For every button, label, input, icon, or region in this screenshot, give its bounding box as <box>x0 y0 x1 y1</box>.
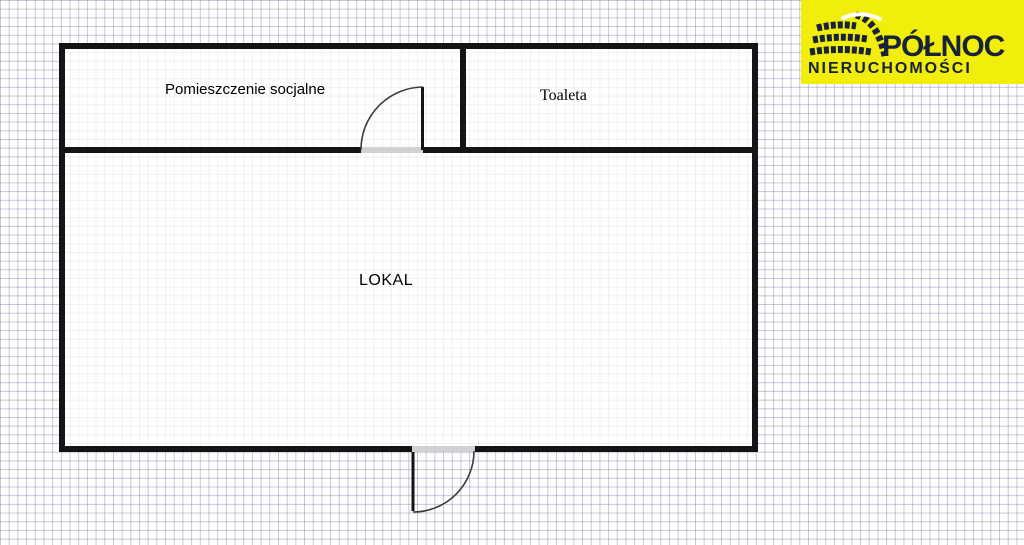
floorplan-interior <box>65 49 752 446</box>
bottom-door-opening <box>412 446 475 452</box>
room-label-toaleta: Toaleta <box>540 87 587 105</box>
top-door-opening <box>361 147 423 153</box>
wall-top <box>59 43 758 49</box>
logo-swoosh <box>843 14 880 19</box>
wall-divider-vertical <box>460 43 466 153</box>
wall-right <box>752 43 758 452</box>
wall-middle-left-segment <box>59 147 361 153</box>
wall-bottom-left-segment <box>59 446 412 452</box>
logo-subtitle: NIERUCHOMOŚCI <box>808 61 1022 77</box>
wall-bottom-right-segment <box>475 446 758 452</box>
logo-brick-row-2 <box>813 37 867 40</box>
logo-brick-row-3 <box>810 50 871 53</box>
room-label-pomieszczenie-socjalne: Pomieszczenie socjalne <box>165 81 325 98</box>
logo-title: PÓŁNOC <box>882 32 1020 62</box>
polnoc-logo-icon <box>801 0 893 66</box>
room-label-lokal: LOKAL <box>359 272 413 290</box>
wall-middle-right-segment <box>423 147 758 153</box>
polnoc-logo: PÓŁNOC NIERUCHOMOŚCI <box>801 0 1024 84</box>
wall-left <box>59 43 65 452</box>
bottom-door-swing-arc <box>413 451 474 512</box>
graph-paper-background: Pomieszczenie socjalne Toaleta LOKAL PÓŁ… <box>0 0 1024 545</box>
logo-brick-row-1 <box>817 25 856 28</box>
